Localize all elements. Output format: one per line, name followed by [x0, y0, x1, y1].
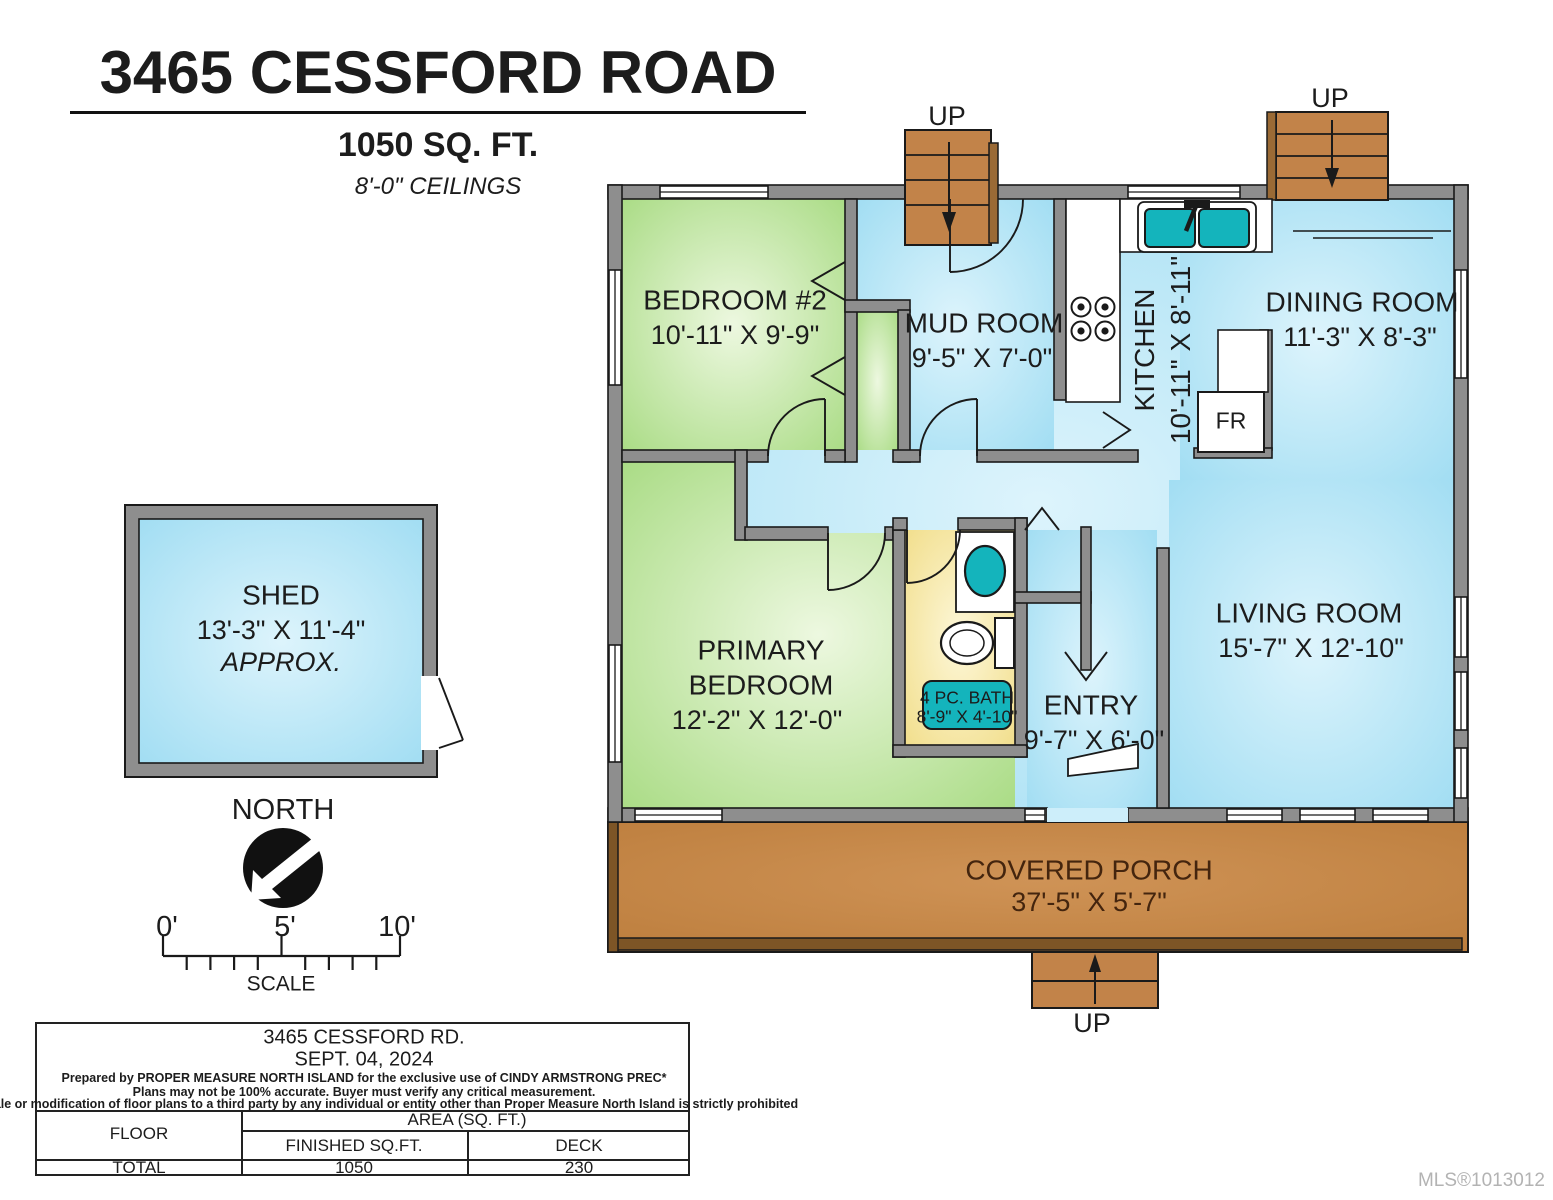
scale-tick-10: 10' — [378, 912, 416, 944]
covered-porch-dims: 37'-5" X 5'-7" — [1011, 888, 1167, 918]
col-divider-2 — [467, 1130, 469, 1174]
kitchen-label: KITCHEN 10'-11" X 8'-11" — [1127, 256, 1199, 444]
mls-watermark: MLS®1013012 — [1418, 1170, 1545, 1192]
bath-sink — [965, 546, 1005, 596]
cell-total: TOTAL — [112, 1158, 165, 1178]
bedroom2-name: BEDROOM #2 — [643, 286, 827, 317]
ceiling-height: 8'-0" CEILINGS — [60, 173, 816, 201]
living-room-name: LIVING ROOM — [1216, 599, 1403, 630]
cell-floor: FLOOR — [110, 1124, 169, 1144]
entry-threshold — [1047, 808, 1128, 822]
scale-tick-5: 5' — [274, 912, 296, 944]
bath-dims: 8'-9" X 4'-10" — [917, 707, 1018, 726]
porch-steps-up-label: UP — [1073, 1009, 1111, 1039]
kitchen-name: KITCHEN — [1127, 256, 1163, 444]
dining-room-dims: 11'-3" X 8'-3" — [1283, 323, 1437, 353]
footer-date: SEPT. 04, 2024 — [295, 1049, 434, 1072]
total-area: 1050 SQ. FT. — [60, 126, 816, 165]
scale-label: SCALE — [247, 972, 316, 995]
plan-header: 3465 CESSFORD ROAD 1050 SQ. FT. 8'-0" CE… — [60, 38, 816, 201]
stairs-left-up-label: UP — [928, 102, 966, 132]
title-underline — [70, 111, 806, 114]
primary-bedroom-line2: BEDROOM — [689, 671, 834, 702]
shed-dims: 13'-3" X 11'-4" — [197, 616, 366, 646]
dining-room-name: DINING ROOM — [1266, 288, 1459, 319]
toilet — [941, 618, 1014, 668]
kitchen-sink — [1138, 200, 1256, 252]
cell-area-header: AREA (SQ. FT.) — [407, 1110, 526, 1130]
page-title: 3465 CESSFORD ROAD — [60, 38, 816, 107]
entry-dims: 9'-7" X 6'-0" — [1024, 726, 1165, 756]
floor-plan-page: 3465 CESSFORD ROAD 1050 SQ. FT. 8'-0" CE… — [0, 0, 1553, 1200]
mud-room-dims: 9'-5" X 7'-0" — [912, 344, 1053, 374]
north-arrow-icon — [243, 828, 323, 908]
bedroom2-dims: 10'-11" X 9'-9" — [651, 321, 820, 351]
primary-bedroom-line1: PRIMARY — [697, 636, 824, 667]
stairs-left — [905, 130, 998, 245]
cell-deck-value: 230 — [565, 1158, 593, 1178]
entry-name: ENTRY — [1044, 691, 1138, 722]
bath-name: 4 PC. BATH — [920, 688, 1014, 707]
footer-resale-line: Private resale or modification of floor … — [0, 1097, 798, 1111]
col-divider-1 — [241, 1110, 243, 1174]
stairs-right-up-label: UP — [1311, 84, 1349, 114]
cell-finished: FINISHED SQ.FT. — [286, 1136, 423, 1156]
area-subline — [241, 1130, 688, 1132]
shed-name: SHED — [242, 581, 320, 612]
fridge-label: FR — [1216, 408, 1247, 433]
footer-prepared-line: Prepared by PROPER MEASURE NORTH ISLAND … — [62, 1071, 667, 1085]
north-label: NORTH — [232, 795, 335, 827]
living-room-dims: 15'-7" X 12'-10" — [1218, 634, 1404, 664]
title-block: 3465 CESSFORD RD. SEPT. 04, 2024 Prepare… — [35, 1022, 690, 1176]
cell-deck: DECK — [555, 1136, 602, 1156]
primary-bedroom-dims: 12'-2" X 12'-0" — [672, 706, 843, 736]
shed-note: APPROX. — [221, 648, 341, 678]
covered-porch-name: COVERED PORCH — [965, 856, 1212, 887]
stairs-right — [1267, 112, 1388, 200]
cell-finished-value: 1050 — [335, 1158, 373, 1178]
footer-address: 3465 CESSFORD RD. — [263, 1027, 464, 1050]
mud-room-name: MUD ROOM — [905, 309, 1064, 340]
porch-steps — [1032, 952, 1158, 1008]
kitchen-dims: 10'-11" X 8'-11" — [1163, 256, 1199, 444]
scale-tick-0: 0' — [156, 912, 178, 944]
